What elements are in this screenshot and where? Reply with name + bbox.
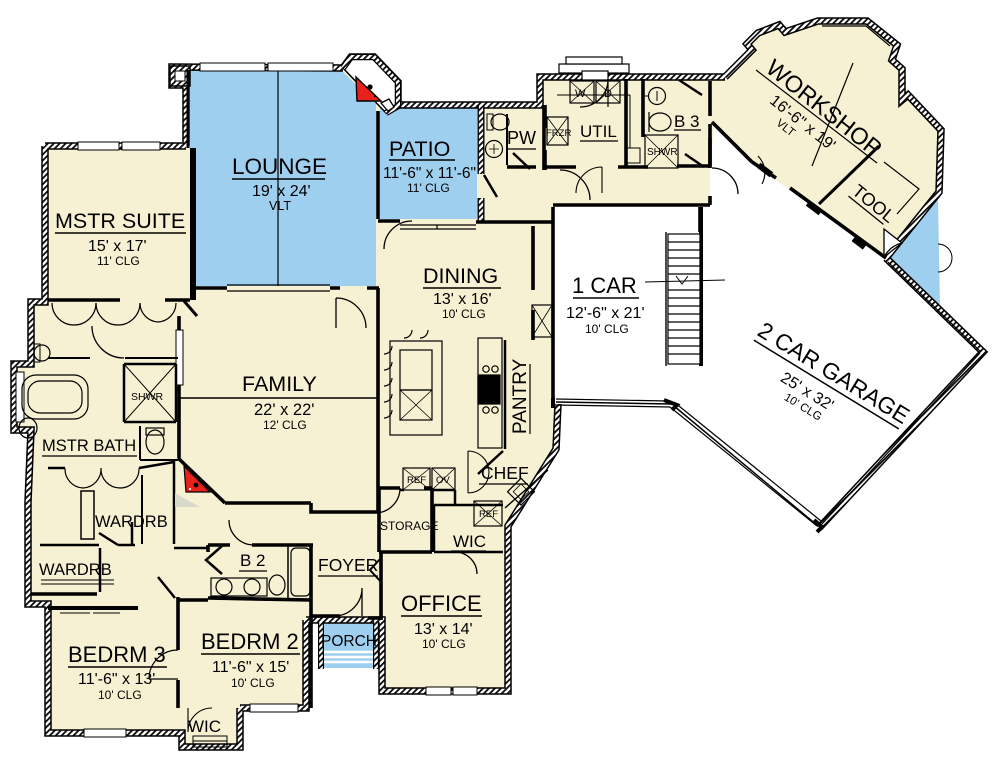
svg-text:10' CLG: 10' CLG — [98, 688, 142, 702]
svg-text:PORCH: PORCH — [321, 633, 377, 650]
svg-text:WIC: WIC — [188, 717, 221, 736]
svg-text:REF: REF — [407, 475, 426, 486]
svg-text:10' CLG: 10' CLG — [442, 307, 486, 321]
svg-text:PW: PW — [507, 128, 536, 148]
svg-text:SHWR: SHWR — [647, 147, 678, 158]
svg-text:OFFICE: OFFICE — [401, 591, 482, 616]
svg-text:12'-6" x 21': 12'-6" x 21' — [566, 305, 645, 322]
svg-text:CHEF: CHEF — [481, 463, 529, 483]
svg-text:1 CAR: 1 CAR — [572, 273, 637, 298]
svg-text:UTIL: UTIL — [580, 122, 617, 141]
svg-text:22' x 22': 22' x 22' — [254, 401, 314, 419]
svg-text:11'-6" x 15': 11'-6" x 15' — [212, 659, 289, 676]
svg-text:PANTRY: PANTRY — [510, 358, 531, 434]
svg-text:19' x 24': 19' x 24' — [252, 183, 311, 200]
svg-text:11'-6" x 11'-6": 11'-6" x 11'-6" — [383, 165, 476, 182]
svg-text:PATIO: PATIO — [389, 137, 450, 161]
svg-text:VLT: VLT — [269, 199, 291, 213]
svg-text:D: D — [604, 88, 612, 100]
svg-text:W: W — [575, 88, 586, 100]
svg-text:MSTR BATH: MSTR BATH — [42, 437, 136, 455]
svg-text:15' x 17': 15' x 17' — [88, 238, 147, 255]
svg-text:11'-6" x 13': 11'-6" x 13' — [78, 671, 155, 688]
svg-text:BEDRM 2: BEDRM 2 — [201, 629, 299, 654]
svg-text:LOUNGE: LOUNGE — [232, 154, 327, 179]
svg-text:FOYER: FOYER — [318, 555, 378, 575]
svg-text:B 2: B 2 — [240, 551, 266, 570]
svg-text:MSTR SUITE: MSTR SUITE — [55, 209, 185, 233]
svg-text:B 3: B 3 — [674, 112, 700, 131]
svg-text:DINING: DINING — [423, 264, 498, 288]
svg-text:OV: OV — [436, 475, 450, 486]
svg-text:WARDRB: WARDRB — [95, 513, 168, 531]
svg-text:10' CLG: 10' CLG — [585, 322, 629, 336]
svg-text:WIC: WIC — [453, 532, 486, 551]
svg-text:BEDRM 3: BEDRM 3 — [68, 642, 166, 667]
svg-text:FRZR: FRZR — [546, 128, 571, 139]
svg-text:11' CLG: 11' CLG — [407, 181, 450, 195]
svg-text:SHWR: SHWR — [131, 391, 163, 403]
svg-text:FAMILY: FAMILY — [242, 372, 317, 396]
svg-text:10' CLG: 10' CLG — [231, 676, 275, 690]
svg-text:11' CLG: 11' CLG — [97, 254, 140, 268]
svg-text:REF: REF — [479, 509, 498, 520]
svg-text:STORAGE: STORAGE — [380, 519, 438, 533]
svg-text:10' CLG: 10' CLG — [422, 637, 466, 651]
svg-text:13' x 14': 13' x 14' — [414, 621, 473, 638]
svg-text:12' CLG: 12' CLG — [263, 418, 307, 432]
svg-text:13' x 16': 13' x 16' — [433, 291, 492, 308]
svg-text:WARDRB: WARDRB — [39, 561, 112, 579]
